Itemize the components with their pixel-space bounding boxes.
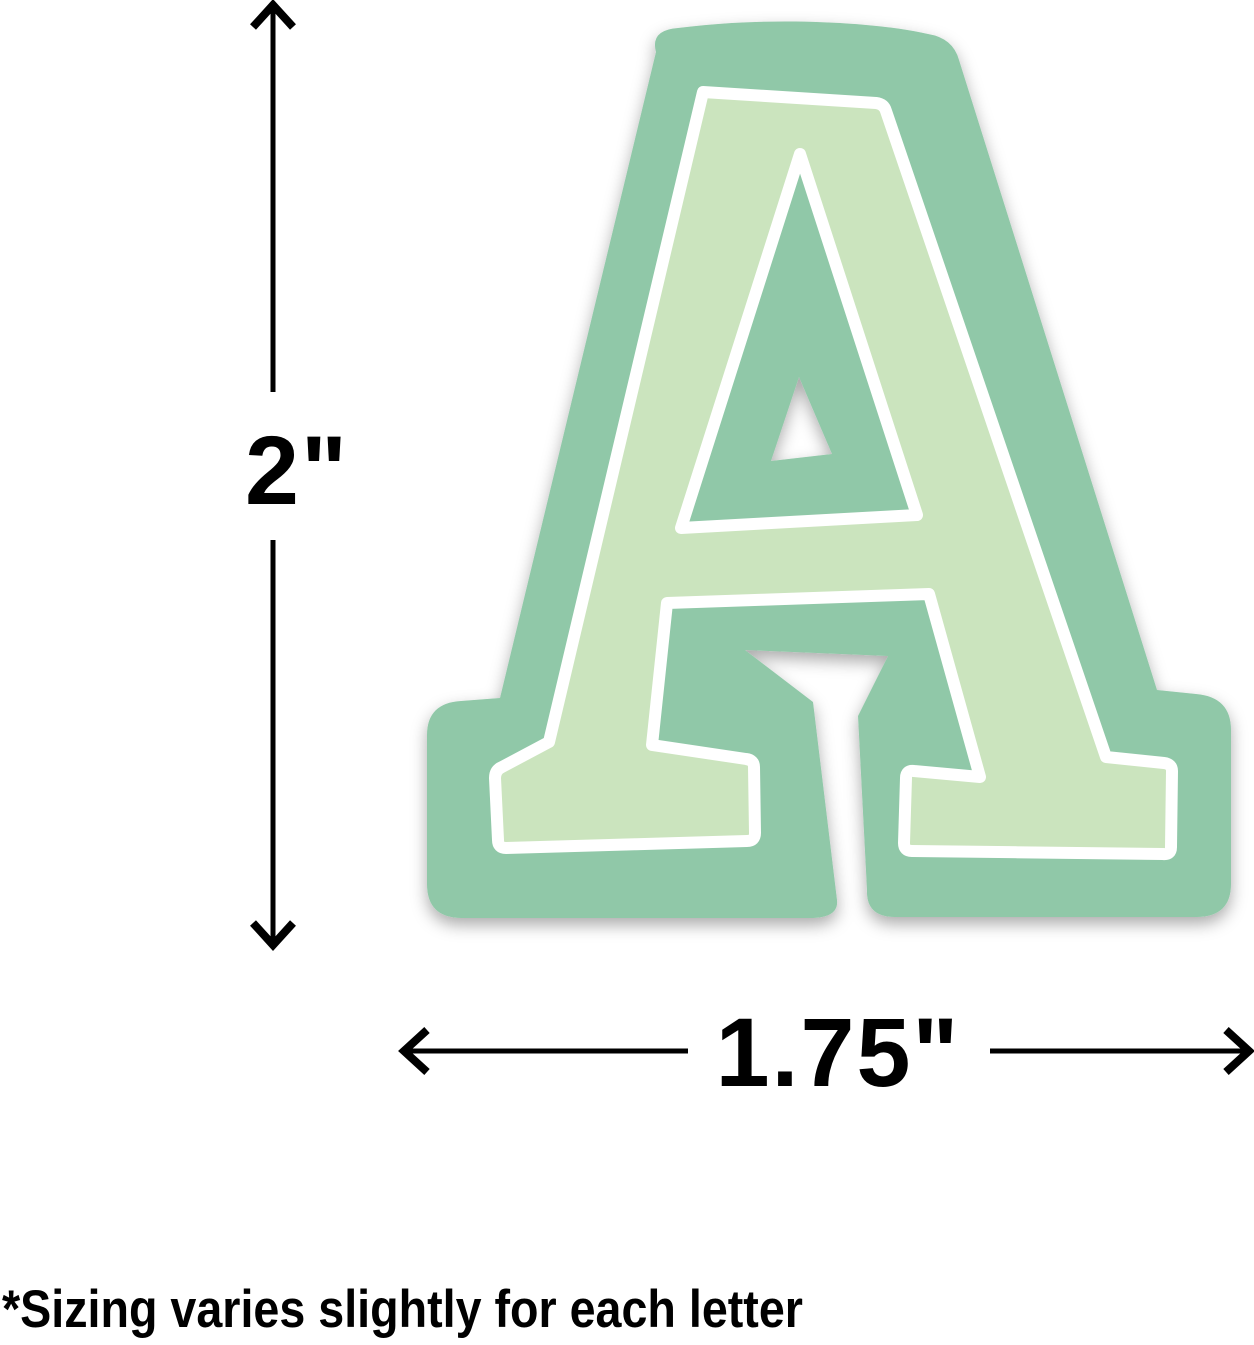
sizing-note: *Sizing varies slightly for each letter [2,1280,803,1341]
letter-sticker [427,21,1231,918]
product-size-diagram: A 2" 1.75" *Sizing varies s [0,0,1254,1345]
height-label: 2" [222,408,372,533]
letter-size-diagram-graphic [0,0,1254,1345]
width-label: 1.75" [688,993,988,1111]
